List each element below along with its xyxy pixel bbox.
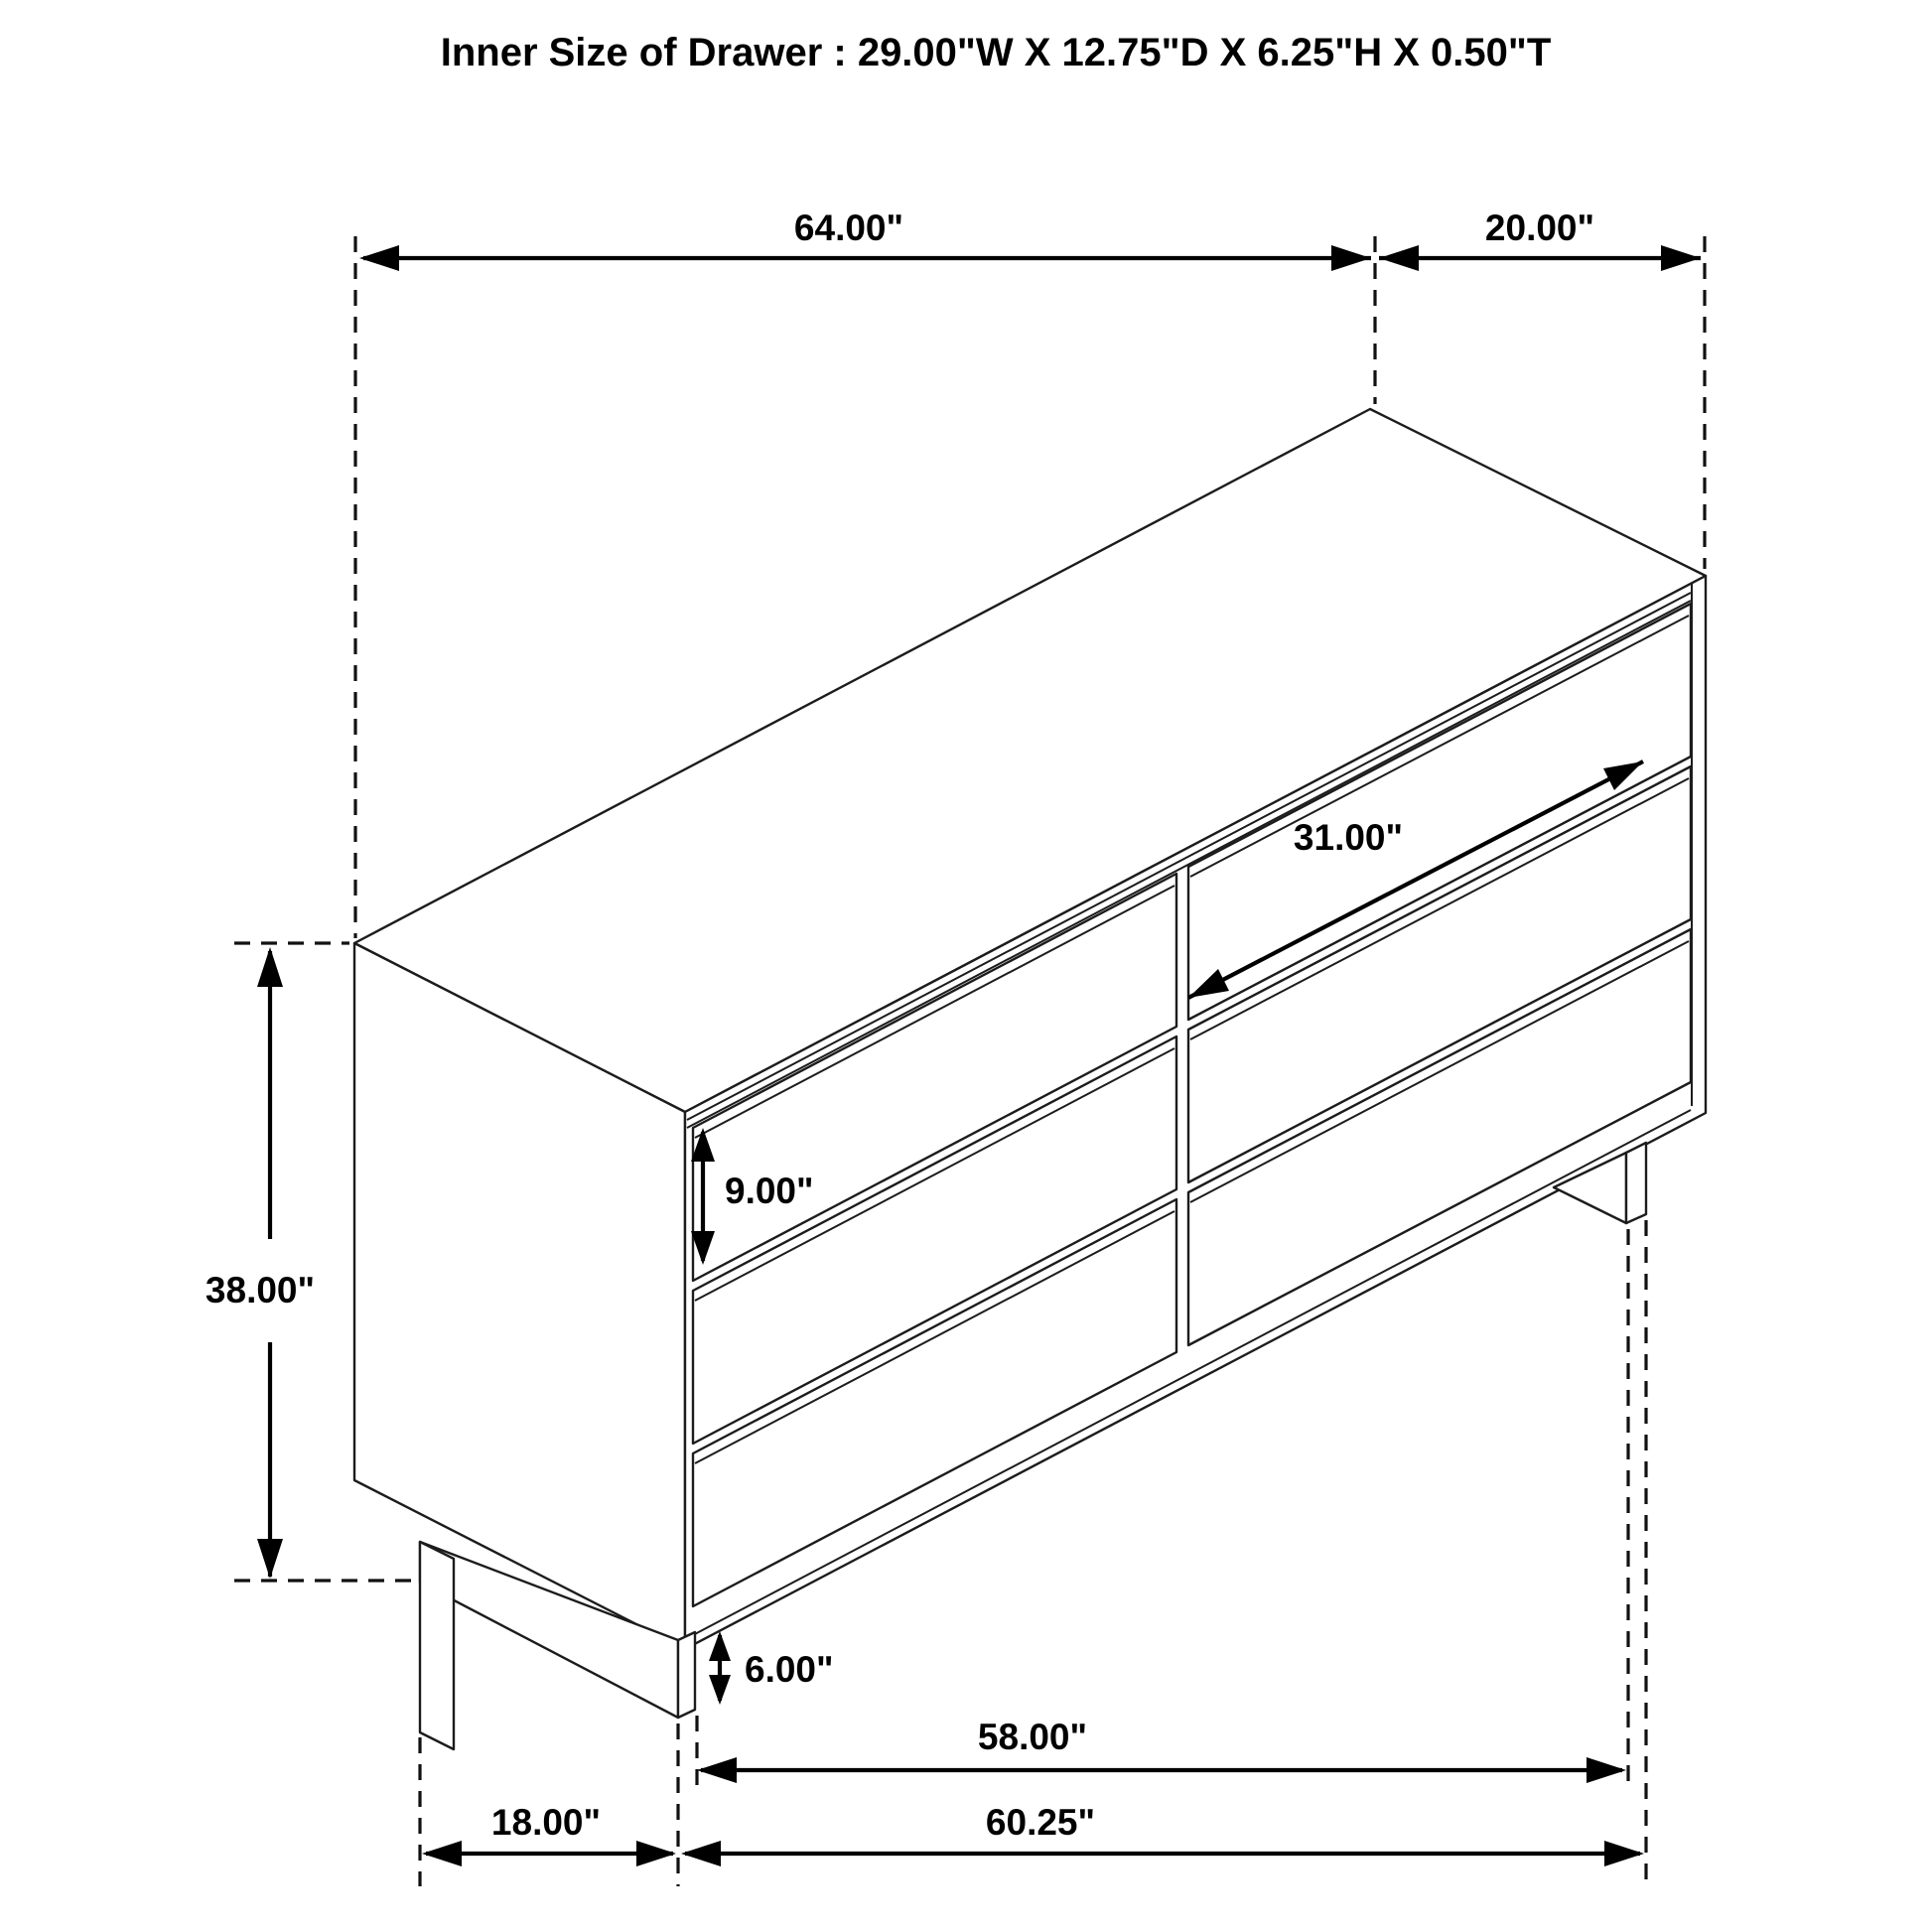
dimension-inner-leg-span: 58.00"	[697, 1717, 1626, 1783]
label-drawer-width: 31.00"	[1294, 817, 1403, 858]
dimension-top-width: 64.00"	[359, 207, 1371, 271]
diagram-title: Inner Size of Drawer : 29.00"W X 12.75"D…	[441, 31, 1552, 74]
dresser-dimension-diagram: 64.00" 20.00" 38.00" 9.00" 31.00" 6.00"	[0, 0, 1932, 1932]
arrowhead-20-right	[1661, 245, 1701, 271]
arrowhead-20-left	[1379, 245, 1419, 271]
label-outer-base-width: 60.25"	[986, 1802, 1095, 1843]
dimension-base-height: 6.00"	[709, 1631, 834, 1705]
arrowhead-64-left	[359, 245, 399, 271]
dimension-top-depth: 20.00"	[1379, 207, 1701, 271]
arrowhead-18-right	[636, 1841, 676, 1866]
arrowhead-60-left	[681, 1841, 721, 1866]
arrowhead-58-left	[697, 1757, 737, 1783]
dimension-side-leg-setback: 18.00"	[422, 1802, 676, 1866]
label-top-width: 64.00"	[794, 207, 903, 248]
label-base-height: 6.00"	[745, 1649, 834, 1690]
dimension-overall-height: 38.00"	[206, 947, 315, 1579]
back-left-leg	[420, 1542, 454, 1749]
arrowhead-64-right	[1331, 245, 1371, 271]
dimension-outer-base-width: 60.25"	[681, 1802, 1644, 1866]
label-overall-height: 38.00"	[206, 1270, 315, 1311]
right-leg-front-face	[1626, 1143, 1646, 1223]
arrowhead-58-right	[1587, 1757, 1626, 1783]
diagram-page: 64.00" 20.00" 38.00" 9.00" 31.00" 6.00"	[0, 0, 1932, 1932]
arrowhead-38-bottom	[257, 1539, 283, 1579]
front-left-leg	[678, 1632, 695, 1718]
label-drawer-height: 9.00"	[725, 1171, 814, 1211]
arrowhead-18-left	[422, 1841, 462, 1866]
label-side-leg-setback: 18.00"	[491, 1802, 601, 1843]
arrowhead-38-top	[257, 947, 283, 987]
label-inner-leg-span: 58.00"	[978, 1717, 1087, 1757]
arrowhead-6-bottom	[709, 1675, 731, 1705]
label-top-depth: 20.00"	[1485, 207, 1594, 248]
arrowhead-60-right	[1604, 1841, 1644, 1866]
